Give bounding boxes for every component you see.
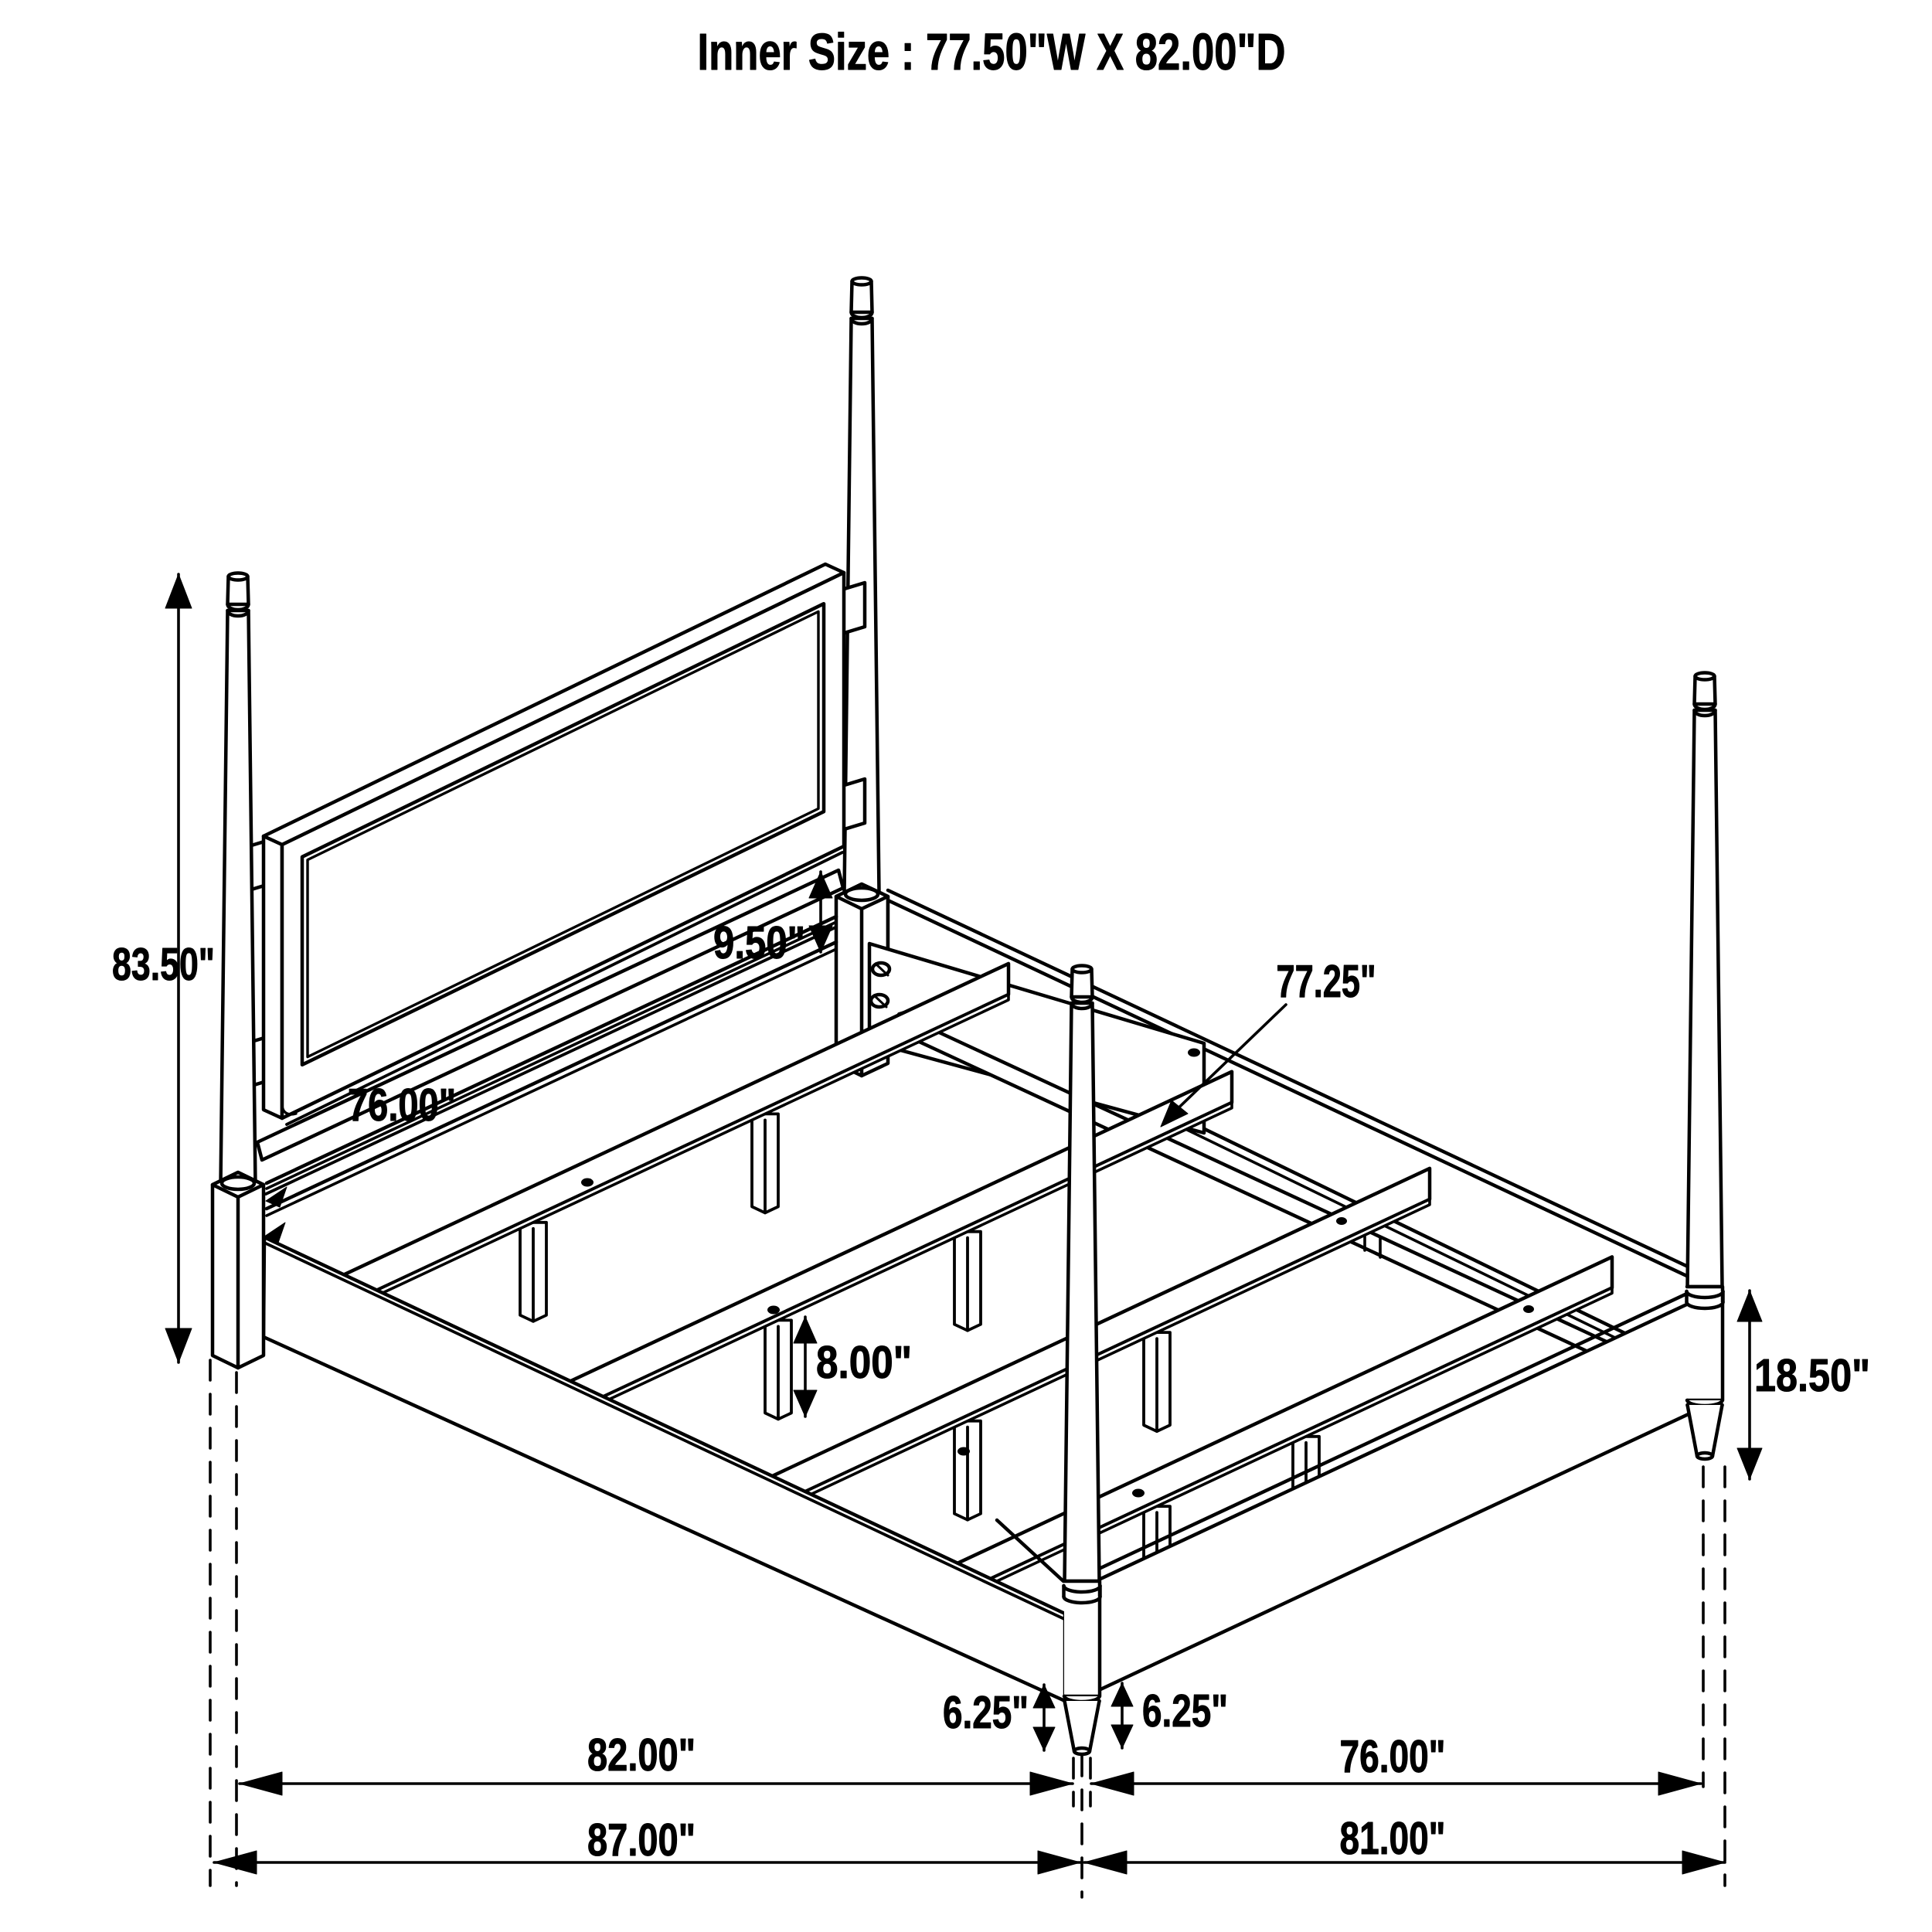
svg-text:83.50": 83.50" [112,939,215,990]
svg-text:6.25": 6.25" [1142,1685,1228,1736]
svg-text:76.00": 76.00" [1340,1731,1446,1782]
svg-text:8.00": 8.00" [816,1337,912,1388]
svg-text:6.25": 6.25" [943,1687,1029,1738]
svg-text:77.25": 77.25" [1277,956,1376,1007]
svg-text:18.50": 18.50" [1754,1350,1870,1401]
svg-text:9.50": 9.50" [713,917,805,968]
svg-text:87.00": 87.00" [587,1815,696,1866]
svg-text:76.00": 76.00" [348,1080,456,1131]
svg-text:82.00": 82.00" [587,1730,696,1781]
svg-text:81.00": 81.00" [1340,1813,1446,1864]
svg-text:Inner Size : 77.50"W X 82.00"D: Inner Size : 77.50"W X 82.00"D [698,23,1286,81]
